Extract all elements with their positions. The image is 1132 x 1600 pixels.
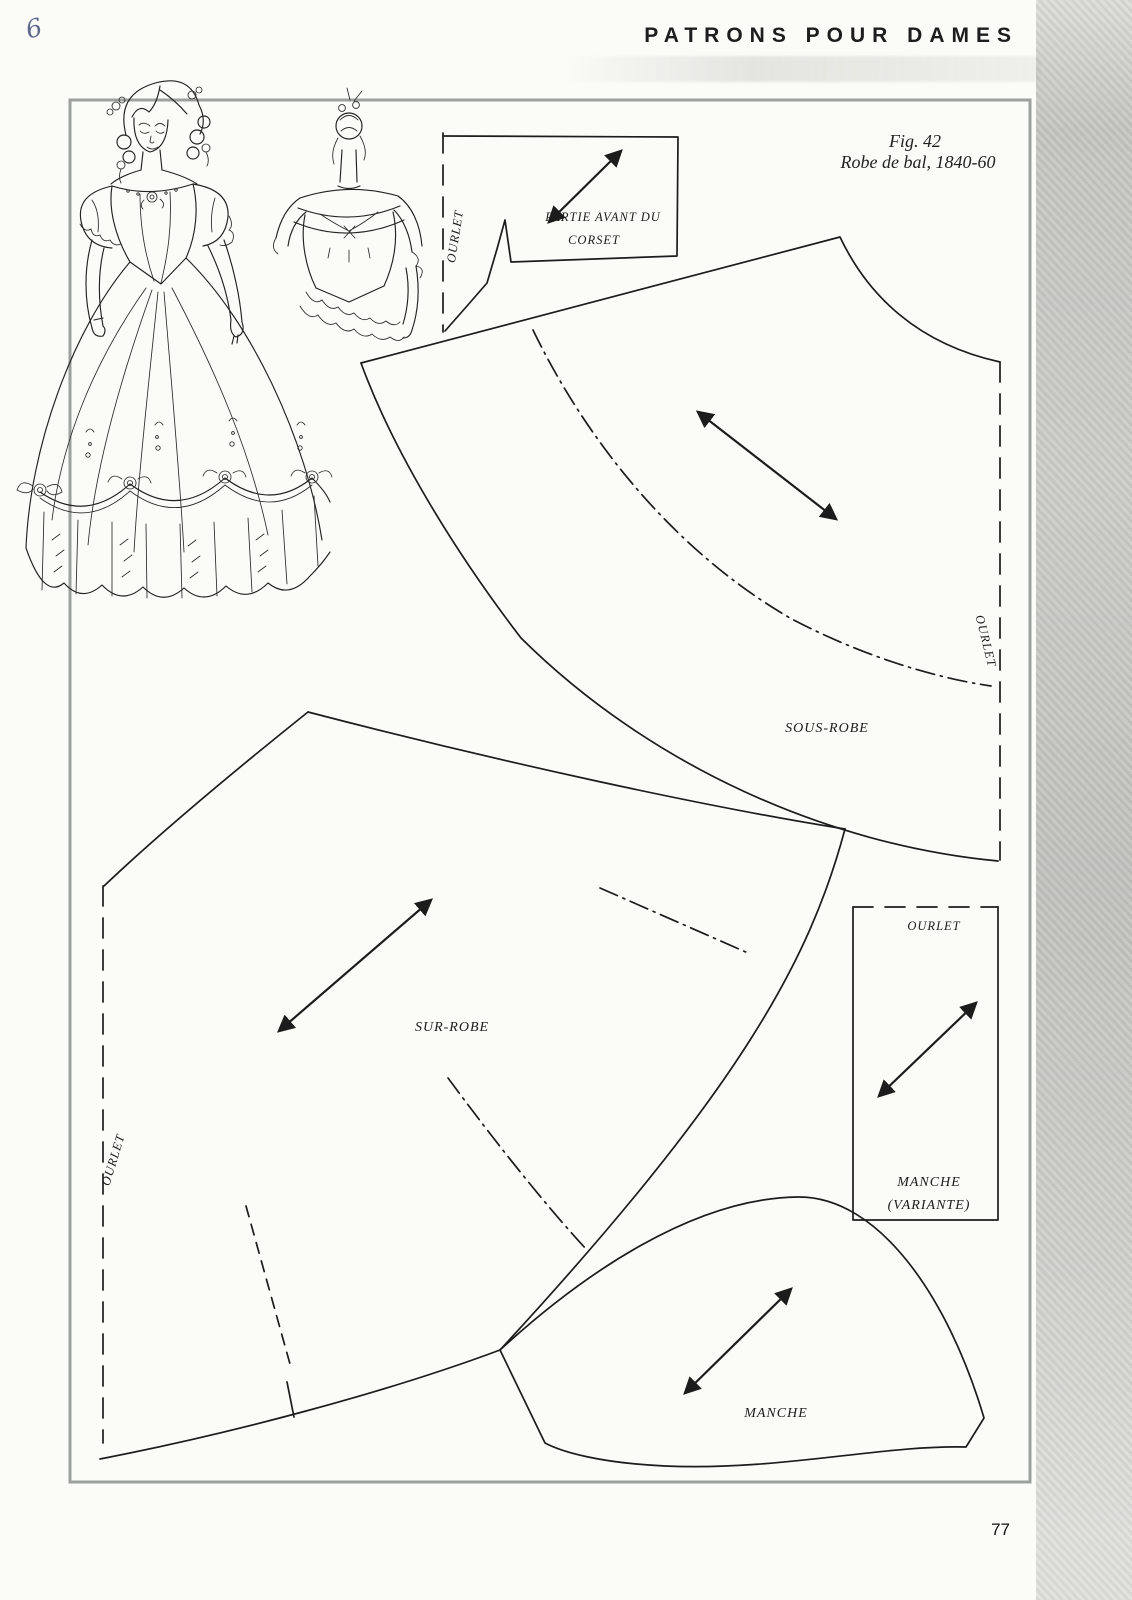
page-frame [70, 100, 1030, 1482]
scanned-pattern-page: 6 PATRONS POUR DAMES 77 Fig. 42 Robe de … [0, 0, 1132, 1600]
figure-caption: Fig. 42 Robe de bal, 1840-60 [840, 131, 996, 172]
sur-robe-mark-line-2 [448, 1078, 587, 1250]
piece-sous-robe: SOUS-ROBE OURLET [361, 237, 1000, 861]
sur-robe-grain-arrow [279, 900, 431, 1031]
corset-label-line1: PARTIE AVANT DU [544, 210, 661, 224]
hem-garland [17, 418, 332, 513]
sur-robe-label: SUR-ROBE [415, 1020, 489, 1035]
corset-label-line2: CORSET [568, 233, 620, 247]
figure-number: Fig. 42 [888, 131, 941, 151]
manche-variante-label-line1: MANCHE [896, 1175, 961, 1190]
manche-variante-hem-label: OURLET [907, 919, 960, 933]
garland-roses [17, 470, 332, 496]
sous-robe-hem-label: OURLET [973, 614, 999, 669]
sous-robe-side-bottom-edge [361, 363, 998, 861]
pattern-diagram: Fig. 42 Robe de bal, 1840-60 OURLET PART… [0, 0, 1132, 1600]
sous-robe-grain-arrow [698, 412, 836, 519]
piece-manche: MANCHE [500, 1197, 984, 1467]
corset-outline [443, 136, 678, 331]
hair [117, 81, 210, 163]
fashion-illustration-bodice-detail [273, 88, 422, 341]
face [134, 118, 168, 152]
sur-robe-mark-line-1 [600, 888, 748, 953]
bodice-detail-bertha-drape [294, 206, 404, 262]
sur-robe-right-edge [500, 829, 845, 1350]
sous-robe-hem-line [533, 330, 991, 686]
puff-sleeves [80, 184, 233, 248]
fashion-illustration-front [17, 81, 332, 598]
bodice-detail-body [300, 212, 404, 341]
garland-ornaments [86, 418, 305, 457]
manche-variante-label-line2: (VARIANTE) [888, 1198, 971, 1213]
arms [86, 240, 243, 344]
figure-title: Robe de bal, 1840-60 [840, 152, 996, 172]
manche-grain-arrow [685, 1289, 791, 1393]
sur-robe-hem-edge [100, 1350, 500, 1459]
sur-robe-mark-line-3 [246, 1206, 290, 1364]
bodice-detail-neck [338, 150, 360, 189]
bodice-detail-shoulders [300, 189, 398, 198]
piece-corset-front: OURLET PARTIE AVANT DU CORSET [443, 133, 678, 332]
corset-hem-label: OURLET [444, 209, 466, 264]
piece-manche-variante: OURLET MANCHE (VARIANTE) [853, 907, 998, 1220]
manche-outline [500, 1197, 984, 1467]
manche-label: MANCHE [743, 1406, 808, 1421]
sur-robe-top-edge [308, 712, 845, 829]
manche-variante-grain-arrow [879, 1003, 976, 1096]
hem-flounce [26, 496, 330, 598]
sur-robe-notch [287, 1382, 294, 1417]
manche-variante-outline [853, 907, 998, 1220]
sur-robe-top-left-edge [104, 712, 308, 886]
sous-robe-label: SOUS-ROBE [785, 721, 869, 736]
